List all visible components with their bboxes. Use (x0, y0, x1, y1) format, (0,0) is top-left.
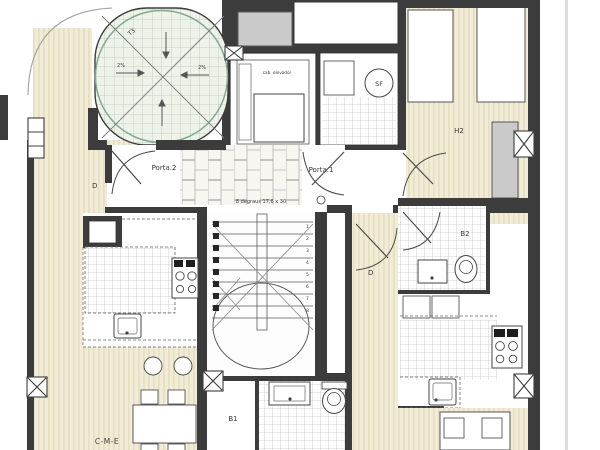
porta-2-label: Porta.2 (152, 164, 177, 172)
bathroom-b2: B2 (398, 206, 486, 290)
elevator-car (254, 94, 304, 142)
bath-b1-label: B1 (228, 415, 237, 423)
dining-table (133, 405, 196, 443)
elevator-shaft: cab. elevador (230, 53, 316, 148)
slope-left-label: 2% (117, 63, 125, 69)
bed (408, 10, 453, 102)
counter (324, 61, 354, 95)
svg-text:8: 8 (306, 308, 309, 314)
bed (477, 6, 525, 102)
stair-note: 8 degraus 17,6 x 30 (236, 199, 286, 205)
slope-right-label: 2% (198, 65, 206, 71)
chair (141, 390, 158, 404)
laundry-room: SF (320, 53, 398, 145)
dining-left-label: C-M-E (95, 437, 119, 446)
chair (482, 418, 502, 438)
hall-left-label: D (92, 182, 97, 190)
window-icon (27, 377, 47, 397)
stove (492, 326, 522, 368)
room-h2-label: H2 (454, 127, 464, 135)
stool (144, 357, 162, 375)
svg-text:4: 4 (306, 260, 309, 266)
sink (269, 382, 310, 405)
corridor-d: D (352, 213, 398, 450)
hallway-brick-floor (180, 145, 302, 205)
appliance-sf-label: SF (375, 80, 383, 88)
closet (403, 296, 430, 318)
porta-1-label: Porta.1 (309, 166, 334, 174)
floor-plan: cab. elevador SF T3 2% 2% H2 (0, 0, 600, 450)
hall-right-label: D (368, 269, 373, 277)
sink (114, 314, 141, 338)
wall-niche (28, 118, 44, 158)
stove (172, 258, 198, 298)
toilet (322, 382, 347, 414)
chair (168, 390, 185, 404)
bathroom-b1: B1 (207, 381, 347, 450)
chair (168, 444, 185, 450)
chair (444, 418, 464, 438)
kitchen-left (83, 213, 198, 347)
svg-text:6: 6 (306, 284, 309, 290)
toilet (455, 256, 477, 283)
terrace: T3 2% 2% (95, 8, 228, 145)
dining-right (398, 408, 528, 450)
window-icon (514, 374, 534, 398)
bedroom-h2: H2 (406, 6, 528, 224)
staircase: 1 2 3 4 5 6 7 8 8 degraus 17,6 x 30 (207, 196, 325, 376)
stair-marker-icon (317, 196, 325, 204)
window-icon (514, 131, 534, 157)
scan-edge (565, 0, 568, 450)
svg-text:2: 2 (306, 236, 309, 242)
svg-text:7: 7 (306, 296, 309, 302)
elevator-label: cab. elevador (263, 70, 292, 75)
bath-b2-label: B2 (460, 230, 469, 238)
sink (429, 379, 456, 405)
roof-gray-panel (238, 12, 292, 46)
window-icon (225, 46, 243, 60)
sink (418, 260, 447, 283)
svg-text:5: 5 (306, 272, 309, 278)
roof-white-panel (294, 2, 398, 44)
window-icon (203, 371, 223, 391)
svg-text:1: 1 (306, 224, 309, 230)
stool (174, 357, 192, 375)
chair (141, 444, 158, 450)
closet (432, 296, 459, 318)
kitchen-tile-floor (85, 247, 175, 313)
svg-text:3: 3 (306, 248, 309, 254)
hallway (107, 145, 345, 207)
